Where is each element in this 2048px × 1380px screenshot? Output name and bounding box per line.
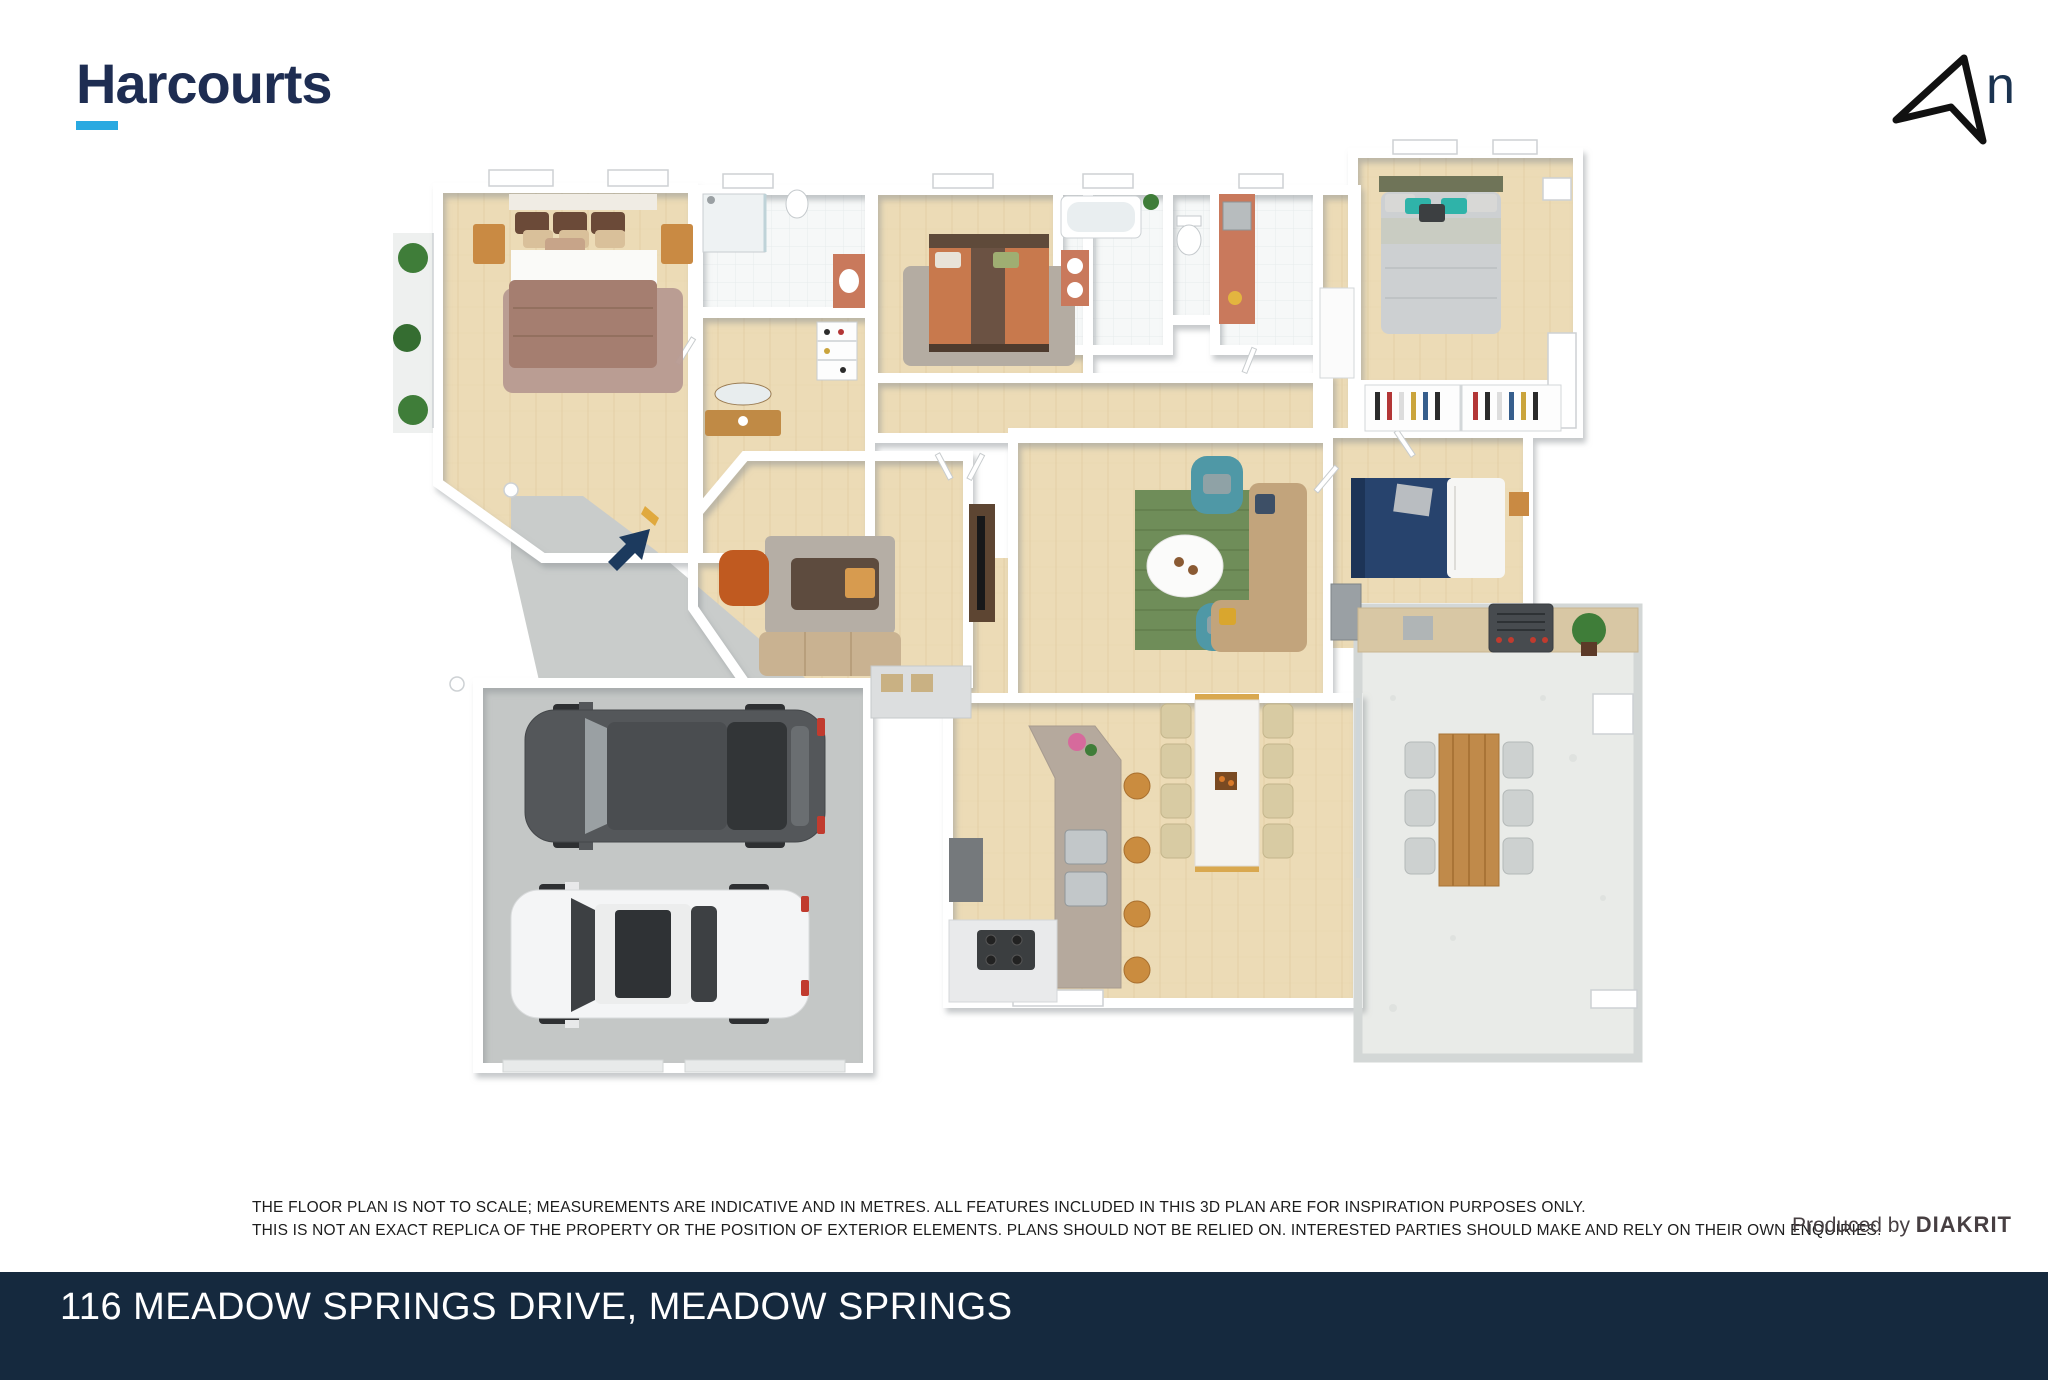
bar-stool-4 bbox=[1124, 957, 1150, 983]
flyer-page: Harcourts n bbox=[0, 0, 2048, 1380]
tv-unit bbox=[969, 504, 995, 622]
bedroom4-side-table bbox=[1509, 492, 1529, 516]
produced-by-prefix: Produced by bbox=[1792, 1214, 1916, 1237]
round-mirror bbox=[715, 383, 771, 405]
dining-chair bbox=[1161, 744, 1191, 778]
outdoor-chair bbox=[1405, 790, 1435, 826]
property-address: 116 MEADOW SPRINGS DRIVE, MEADOW SPRINGS bbox=[60, 1286, 1013, 1329]
dining-chair bbox=[1161, 704, 1191, 738]
oven-tower bbox=[949, 838, 983, 902]
bedroom-3 bbox=[1379, 176, 1503, 334]
north-letter: n bbox=[1986, 56, 2015, 116]
laundry-basket bbox=[1228, 291, 1242, 305]
outdoor-chair bbox=[1405, 838, 1435, 874]
floor-plan bbox=[393, 138, 1703, 1118]
sink-2 bbox=[1065, 872, 1107, 906]
produced-by: Produced by DIAKRIT bbox=[1600, 1212, 2012, 1238]
built-in-robes bbox=[1365, 385, 1561, 431]
fruit-bowl bbox=[1215, 772, 1237, 790]
north-indicator: n bbox=[1884, 44, 2048, 154]
toilet bbox=[1177, 225, 1201, 255]
cooktop bbox=[977, 930, 1035, 970]
dining-chair bbox=[1263, 744, 1293, 778]
dark-suv bbox=[525, 702, 825, 850]
diakrit-brand: DIAKRIT bbox=[1916, 1212, 2012, 1237]
tv-screen bbox=[977, 516, 985, 610]
address-bar: 116 MEADOW SPRINGS DRIVE, MEADOW SPRINGS bbox=[0, 1272, 2048, 1380]
bar-stool-3 bbox=[1124, 901, 1150, 927]
flowers bbox=[1068, 733, 1086, 751]
fridge bbox=[1331, 584, 1361, 640]
outdoor-chair bbox=[1503, 790, 1533, 826]
shoe-cabinet bbox=[817, 322, 857, 380]
dining-chair bbox=[1263, 824, 1293, 858]
laundry bbox=[1219, 194, 1255, 324]
yellow-cushion bbox=[1219, 608, 1236, 625]
bedroom-4 bbox=[1351, 478, 1529, 578]
navy-cushion bbox=[1255, 494, 1275, 514]
potted-plant bbox=[1572, 613, 1606, 647]
nightstand-left bbox=[473, 224, 505, 264]
laundry-sink bbox=[1223, 202, 1251, 230]
outdoor-chair bbox=[1503, 838, 1533, 874]
linen-cupboard bbox=[1320, 288, 1354, 378]
outdoor-sink bbox=[1403, 616, 1433, 640]
orange-armchair bbox=[719, 550, 769, 606]
dining-chair bbox=[1161, 784, 1191, 818]
ottoman-tray bbox=[845, 568, 875, 598]
garage-door-2 bbox=[685, 1060, 845, 1072]
bar-stool-2 bbox=[1124, 837, 1150, 863]
harcourts-logo: Harcourts bbox=[76, 56, 332, 130]
dining-chair bbox=[1161, 824, 1191, 858]
bathroom-plant bbox=[1143, 194, 1159, 210]
bar-stool-1 bbox=[1124, 773, 1150, 799]
wc bbox=[1177, 216, 1201, 255]
harcourts-logo-underline bbox=[76, 121, 118, 130]
outdoor-chair bbox=[1503, 742, 1533, 778]
hall-cabinet bbox=[871, 666, 971, 718]
bbq bbox=[1489, 604, 1553, 652]
harcourts-logo-text: Harcourts bbox=[76, 56, 332, 112]
sofa-chaise bbox=[1211, 600, 1307, 652]
white-sedan bbox=[511, 882, 809, 1028]
nightstand-right bbox=[661, 224, 693, 264]
garage-door-1 bbox=[503, 1060, 663, 1072]
dining-chair bbox=[1263, 704, 1293, 738]
outdoor-chair bbox=[1405, 742, 1435, 778]
round-coffee-table bbox=[1147, 535, 1223, 597]
dining-chair bbox=[1263, 784, 1293, 818]
sink-1 bbox=[1065, 830, 1107, 864]
ensuite-toilet bbox=[786, 190, 808, 218]
